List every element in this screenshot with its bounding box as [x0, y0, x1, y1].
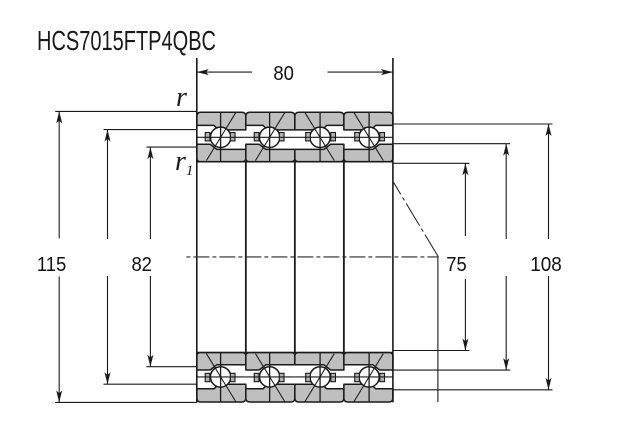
svg-text:r: r — [176, 82, 187, 113]
svg-text:80: 80 — [273, 63, 294, 85]
svg-text:82: 82 — [131, 254, 152, 276]
svg-text:HCS7015FTP4QBC: HCS7015FTP4QBC — [37, 25, 216, 56]
svg-text:75: 75 — [446, 254, 467, 276]
svg-text:108: 108 — [530, 254, 562, 276]
svg-text:115: 115 — [37, 254, 67, 276]
